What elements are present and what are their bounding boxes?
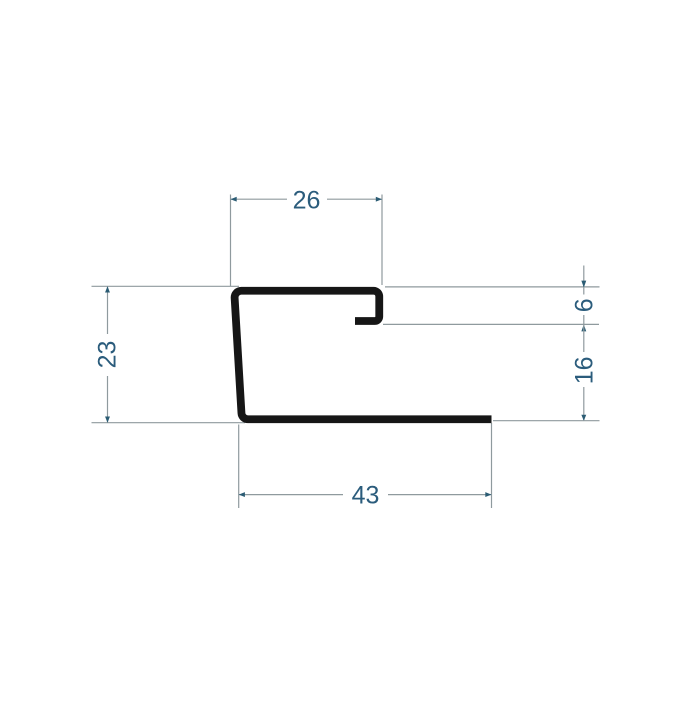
svg-text:26: 26 <box>293 186 321 214</box>
svg-text:6: 6 <box>571 298 599 312</box>
svg-text:16: 16 <box>571 356 599 384</box>
svg-text:23: 23 <box>94 341 122 369</box>
svg-text:43: 43 <box>352 482 380 510</box>
